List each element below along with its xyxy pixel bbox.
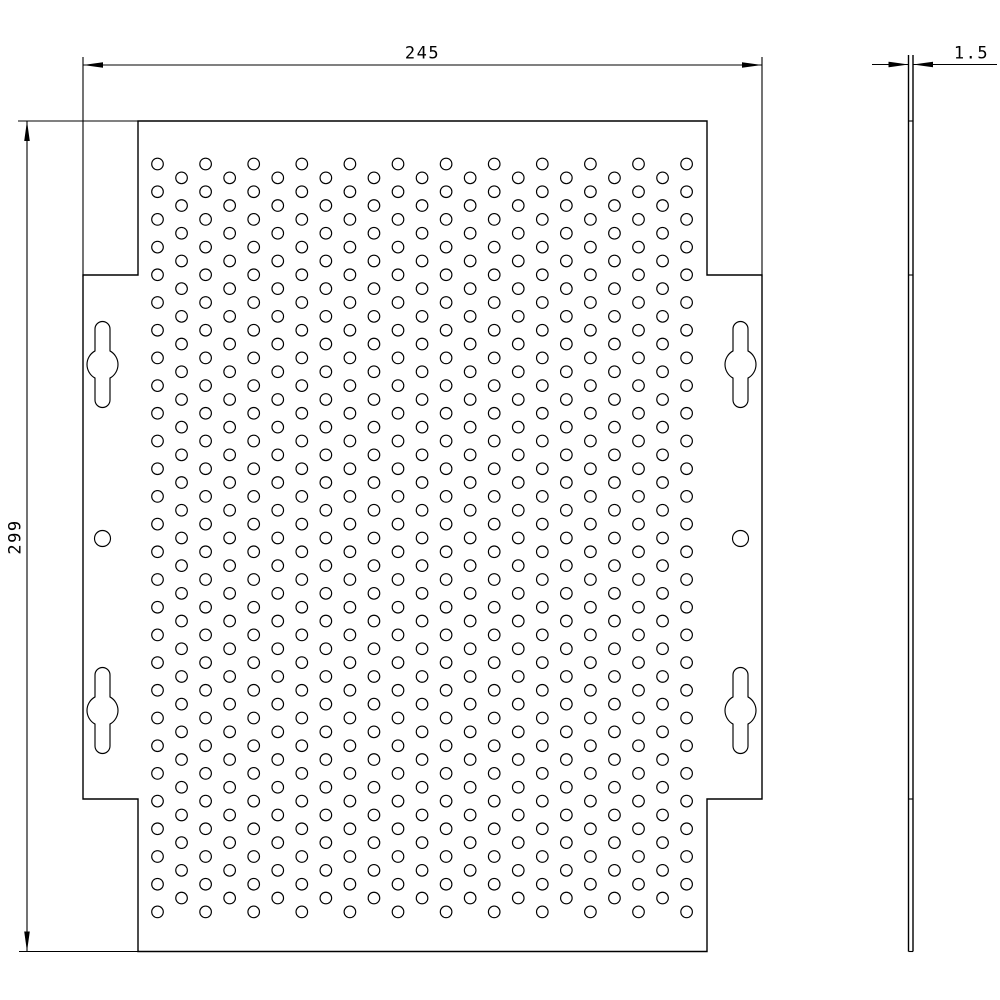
perforation-hole <box>176 338 188 350</box>
perforation-hole <box>152 408 164 420</box>
perforation-hole <box>657 200 669 212</box>
perforation-hole <box>344 685 356 697</box>
perforation-hole <box>537 546 549 558</box>
perforation-hole <box>585 574 597 586</box>
perforation-hole <box>320 200 332 212</box>
perforation-hole <box>248 214 260 226</box>
perforation-hole <box>224 892 236 904</box>
perforation-hole <box>416 504 428 516</box>
perforation-hole <box>440 435 452 447</box>
perforation-hole <box>609 560 621 572</box>
perforation-hole <box>224 643 236 655</box>
perforation-hole <box>200 324 212 336</box>
perforation-hole <box>248 435 260 447</box>
perforation-hole <box>537 491 549 503</box>
perforation-hole <box>585 546 597 558</box>
perforation-hole <box>488 878 500 890</box>
perforation-hole <box>537 297 549 309</box>
perforation-hole <box>657 671 669 683</box>
perforation-hole <box>368 643 380 655</box>
perforation-hole <box>681 574 693 586</box>
perforation-hole <box>392 878 404 890</box>
perforation-hole <box>272 643 284 655</box>
perforation-hole <box>224 588 236 600</box>
perforation-hole <box>224 615 236 627</box>
perforation-hole <box>657 532 669 544</box>
perforation-hole <box>609 504 621 516</box>
perforation-hole <box>176 477 188 489</box>
perforation-hole <box>464 421 476 433</box>
perforation-hole <box>488 435 500 447</box>
perforation-hole <box>537 740 549 752</box>
perforation-hole <box>392 352 404 364</box>
perforation-hole <box>224 560 236 572</box>
perforation-hole <box>537 518 549 530</box>
perforation-hole <box>440 186 452 198</box>
perforation-hole <box>561 560 573 572</box>
perforation-hole <box>152 269 164 281</box>
perforation-hole <box>176 809 188 821</box>
perforation-hole <box>537 712 549 724</box>
perforation-hole <box>152 518 164 530</box>
perforation-hole <box>344 518 356 530</box>
perforation-hole <box>585 768 597 780</box>
perforation-hole <box>224 311 236 323</box>
perforation-hole <box>488 740 500 752</box>
perforation-hole <box>609 643 621 655</box>
perforation-hole <box>296 408 308 420</box>
perforation-hole <box>585 380 597 392</box>
perforation-hole <box>561 892 573 904</box>
perforation-hole <box>200 463 212 475</box>
perforation-hole <box>585 158 597 170</box>
perforation-hole <box>344 823 356 835</box>
perforation-hole <box>368 366 380 378</box>
perforation-hole <box>368 338 380 350</box>
perforation-hole <box>248 795 260 807</box>
perforation-hole <box>440 906 452 918</box>
perforation-hole <box>320 255 332 267</box>
perforation-hole <box>416 726 428 738</box>
perforation-hole <box>561 311 573 323</box>
perforation-hole <box>633 186 645 198</box>
perforation-hole <box>488 352 500 364</box>
perforation-hole <box>609 421 621 433</box>
perforation-hole <box>200 601 212 613</box>
perforation-hole <box>681 546 693 558</box>
pilot-hole <box>733 531 749 547</box>
perforation-hole <box>609 588 621 600</box>
perforation-hole <box>416 809 428 821</box>
perforation-hole <box>512 781 524 793</box>
perforation-hole <box>320 421 332 433</box>
perforation-hole <box>537 657 549 669</box>
perforation-hole <box>416 255 428 267</box>
perforation-hole <box>152 574 164 586</box>
perforation-hole <box>488 214 500 226</box>
perforation-hole <box>681 297 693 309</box>
perforation-hole-grid <box>152 158 693 918</box>
perforation-hole <box>344 158 356 170</box>
perforation-hole <box>248 241 260 253</box>
keyhole-slot <box>725 668 756 754</box>
perforation-hole <box>368 892 380 904</box>
perforation-hole <box>585 685 597 697</box>
perforation-hole <box>585 352 597 364</box>
perforation-hole <box>609 781 621 793</box>
perforation-hole <box>224 754 236 766</box>
perforation-hole <box>200 851 212 863</box>
perforation-hole <box>561 200 573 212</box>
perforation-hole <box>296 629 308 641</box>
perforation-hole <box>681 629 693 641</box>
perforation-hole <box>248 629 260 641</box>
height-dimension-label: 299 <box>7 519 24 554</box>
perforation-hole <box>633 408 645 420</box>
perforation-hole <box>681 740 693 752</box>
perforation-hole <box>561 449 573 461</box>
perforation-hole <box>609 366 621 378</box>
perforation-hole <box>585 518 597 530</box>
perforation-hole <box>440 768 452 780</box>
perforation-hole <box>224 671 236 683</box>
perforation-hole <box>585 601 597 613</box>
width-dimension <box>83 57 762 277</box>
perforation-hole <box>416 200 428 212</box>
perforation-hole <box>392 795 404 807</box>
perforation-hole <box>512 671 524 683</box>
perforation-hole <box>368 754 380 766</box>
perforation-hole <box>512 698 524 710</box>
perforation-hole <box>464 227 476 239</box>
side-view-plate <box>909 55 914 952</box>
perforation-hole <box>176 227 188 239</box>
perforation-hole <box>320 394 332 406</box>
perforation-hole <box>368 532 380 544</box>
perforation-hole <box>248 324 260 336</box>
perforation-hole <box>296 823 308 835</box>
perforation-hole <box>440 518 452 530</box>
perforation-hole <box>344 408 356 420</box>
perforation-hole <box>633 851 645 863</box>
perforation-hole <box>681 823 693 835</box>
perforation-hole <box>464 477 476 489</box>
perforation-hole <box>416 754 428 766</box>
perforation-hole <box>537 269 549 281</box>
perforation-hole <box>224 477 236 489</box>
perforation-hole <box>464 283 476 295</box>
perforation-hole <box>392 491 404 503</box>
perforation-hole <box>152 878 164 890</box>
perforation-hole <box>561 643 573 655</box>
perforation-hole <box>657 698 669 710</box>
perforation-hole <box>464 809 476 821</box>
perforation-hole <box>296 380 308 392</box>
perforation-hole <box>609 172 621 184</box>
perforation-hole <box>512 809 524 821</box>
perforation-hole <box>296 546 308 558</box>
perforation-hole <box>152 685 164 697</box>
perforation-hole <box>272 311 284 323</box>
perforation-hole <box>224 781 236 793</box>
perforation-hole <box>633 768 645 780</box>
perforation-hole <box>681 795 693 807</box>
perforation-hole <box>200 408 212 420</box>
perforation-hole <box>296 297 308 309</box>
perforation-hole <box>488 408 500 420</box>
perforation-hole <box>633 740 645 752</box>
perforation-hole <box>585 241 597 253</box>
perforation-hole <box>368 227 380 239</box>
perforation-hole <box>633 324 645 336</box>
perforation-hole <box>176 200 188 212</box>
perforation-hole <box>296 685 308 697</box>
perforation-hole <box>176 311 188 323</box>
width-dimension-label: 245 <box>405 46 440 63</box>
perforation-hole <box>416 560 428 572</box>
perforation-hole <box>657 754 669 766</box>
perforation-hole <box>152 851 164 863</box>
keyhole-slot <box>725 322 756 408</box>
perforation-hole <box>392 906 404 918</box>
perforation-hole <box>200 878 212 890</box>
perforation-hole <box>585 491 597 503</box>
perforation-hole <box>344 906 356 918</box>
perforation-hole <box>248 601 260 613</box>
perforation-hole <box>488 324 500 336</box>
height-dimension <box>18 121 140 952</box>
perforation-hole <box>440 241 452 253</box>
perforation-hole <box>248 712 260 724</box>
perforation-hole <box>512 643 524 655</box>
perforation-hole <box>368 726 380 738</box>
perforation-hole <box>320 311 332 323</box>
perforation-hole <box>248 768 260 780</box>
perforation-hole <box>200 269 212 281</box>
perforation-hole <box>368 781 380 793</box>
perforation-hole <box>296 269 308 281</box>
perforation-hole <box>224 837 236 849</box>
perforation-hole <box>224 200 236 212</box>
perforation-hole <box>440 463 452 475</box>
perforation-hole <box>272 781 284 793</box>
perforation-hole <box>344 463 356 475</box>
perforation-hole <box>272 255 284 267</box>
perforation-hole <box>440 491 452 503</box>
perforation-hole <box>200 574 212 586</box>
perforation-hole <box>657 643 669 655</box>
perforation-hole <box>657 311 669 323</box>
perforation-hole <box>633 241 645 253</box>
perforation-hole <box>657 283 669 295</box>
perforation-hole <box>344 740 356 752</box>
perforation-hole <box>344 380 356 392</box>
perforation-hole <box>416 366 428 378</box>
perforation-hole <box>464 200 476 212</box>
perforation-hole <box>416 421 428 433</box>
perforation-hole <box>464 643 476 655</box>
perforation-hole <box>512 394 524 406</box>
perforation-hole <box>633 546 645 558</box>
perforation-hole <box>272 200 284 212</box>
perforation-hole <box>416 671 428 683</box>
perforation-hole <box>152 297 164 309</box>
perforation-hole <box>368 477 380 489</box>
perforation-hole <box>320 283 332 295</box>
perforation-hole <box>176 588 188 600</box>
perforation-hole <box>152 435 164 447</box>
perforation-hole <box>344 601 356 613</box>
perforation-hole <box>681 685 693 697</box>
perforation-hole <box>320 504 332 516</box>
perforation-hole <box>657 865 669 877</box>
perforation-hole <box>633 214 645 226</box>
perforation-hole <box>512 892 524 904</box>
perforation-hole <box>392 324 404 336</box>
perforation-hole <box>609 227 621 239</box>
perforation-hole <box>681 851 693 863</box>
perforation-hole <box>512 255 524 267</box>
perforation-hole <box>657 781 669 793</box>
perforation-hole <box>537 380 549 392</box>
perforation-hole <box>681 158 693 170</box>
perforation-hole <box>152 768 164 780</box>
perforation-hole <box>152 712 164 724</box>
perforation-hole <box>224 865 236 877</box>
perforation-hole <box>368 865 380 877</box>
perforation-hole <box>392 463 404 475</box>
perforation-hole <box>200 740 212 752</box>
perforation-hole <box>609 865 621 877</box>
perforation-hole <box>272 588 284 600</box>
perforation-hole <box>272 338 284 350</box>
perforation-hole <box>464 588 476 600</box>
perforation-hole <box>176 892 188 904</box>
perforation-hole <box>609 726 621 738</box>
technical-drawing-canvas: 245 299 1.5 <box>0 0 1000 1000</box>
perforation-hole <box>320 449 332 461</box>
perforation-hole <box>657 255 669 267</box>
perforation-hole <box>368 172 380 184</box>
perforation-hole <box>585 878 597 890</box>
perforation-hole <box>224 366 236 378</box>
height-arrow-top <box>24 121 30 141</box>
perforation-hole <box>416 477 428 489</box>
perforation-hole <box>344 214 356 226</box>
perforation-hole <box>272 532 284 544</box>
perforation-hole <box>609 200 621 212</box>
perforation-hole <box>633 657 645 669</box>
perforation-hole <box>561 477 573 489</box>
perforation-hole <box>224 394 236 406</box>
perforation-hole <box>537 352 549 364</box>
perforation-hole <box>176 366 188 378</box>
perforation-hole <box>488 546 500 558</box>
perforation-hole <box>537 906 549 918</box>
perforation-hole <box>633 269 645 281</box>
perforation-hole <box>296 906 308 918</box>
perforation-hole <box>512 311 524 323</box>
perforation-hole <box>440 324 452 336</box>
perforation-hole <box>392 241 404 253</box>
perforation-hole <box>200 241 212 253</box>
perforation-hole <box>320 726 332 738</box>
perforation-hole <box>512 200 524 212</box>
perforation-hole <box>609 809 621 821</box>
perforation-hole <box>320 671 332 683</box>
perforation-hole <box>512 477 524 489</box>
perforation-hole <box>392 546 404 558</box>
perforation-hole <box>248 297 260 309</box>
perforation-hole <box>657 172 669 184</box>
perforation-hole <box>561 588 573 600</box>
perforation-hole <box>488 823 500 835</box>
perforation-hole <box>537 823 549 835</box>
perforation-hole <box>609 698 621 710</box>
plate-outline-path <box>83 121 762 952</box>
perforation-hole <box>657 366 669 378</box>
keyhole-slot <box>87 668 118 754</box>
perforation-hole <box>585 851 597 863</box>
perforation-hole <box>512 172 524 184</box>
perforation-hole <box>585 297 597 309</box>
perforation-hole <box>585 435 597 447</box>
perforation-hole <box>464 338 476 350</box>
perforation-hole <box>440 408 452 420</box>
perforation-hole <box>320 615 332 627</box>
perforation-hole <box>488 712 500 724</box>
perforation-hole <box>488 463 500 475</box>
perforation-hole <box>200 906 212 918</box>
perforation-hole <box>609 283 621 295</box>
perforation-hole <box>368 837 380 849</box>
perforation-hole <box>657 477 669 489</box>
perforation-hole <box>248 518 260 530</box>
perforation-hole <box>633 878 645 890</box>
perforation-hole <box>633 518 645 530</box>
perforation-hole <box>561 255 573 267</box>
perforation-hole <box>561 726 573 738</box>
perforation-hole <box>176 643 188 655</box>
perforation-hole <box>681 878 693 890</box>
perforation-hole <box>392 408 404 420</box>
perforation-hole <box>272 504 284 516</box>
perforation-hole <box>537 186 549 198</box>
perforation-hole <box>296 518 308 530</box>
perforation-hole <box>681 712 693 724</box>
perforation-hole <box>272 283 284 295</box>
perforation-hole <box>152 463 164 475</box>
width-arrow-left <box>83 62 103 68</box>
width-arrow-right <box>742 62 762 68</box>
perforation-hole <box>440 685 452 697</box>
perforation-hole <box>248 823 260 835</box>
perforation-hole <box>392 712 404 724</box>
perforation-hole <box>488 158 500 170</box>
perforation-hole <box>440 546 452 558</box>
perforation-hole <box>609 255 621 267</box>
perforation-hole <box>633 906 645 918</box>
perforation-hole <box>176 865 188 877</box>
perforation-hole <box>681 352 693 364</box>
perforation-hole <box>681 601 693 613</box>
perforation-hole <box>633 352 645 364</box>
perforation-hole <box>344 324 356 336</box>
perforation-hole <box>440 380 452 392</box>
perforation-hole <box>464 504 476 516</box>
perforation-hole <box>320 643 332 655</box>
perforation-hole <box>392 186 404 198</box>
